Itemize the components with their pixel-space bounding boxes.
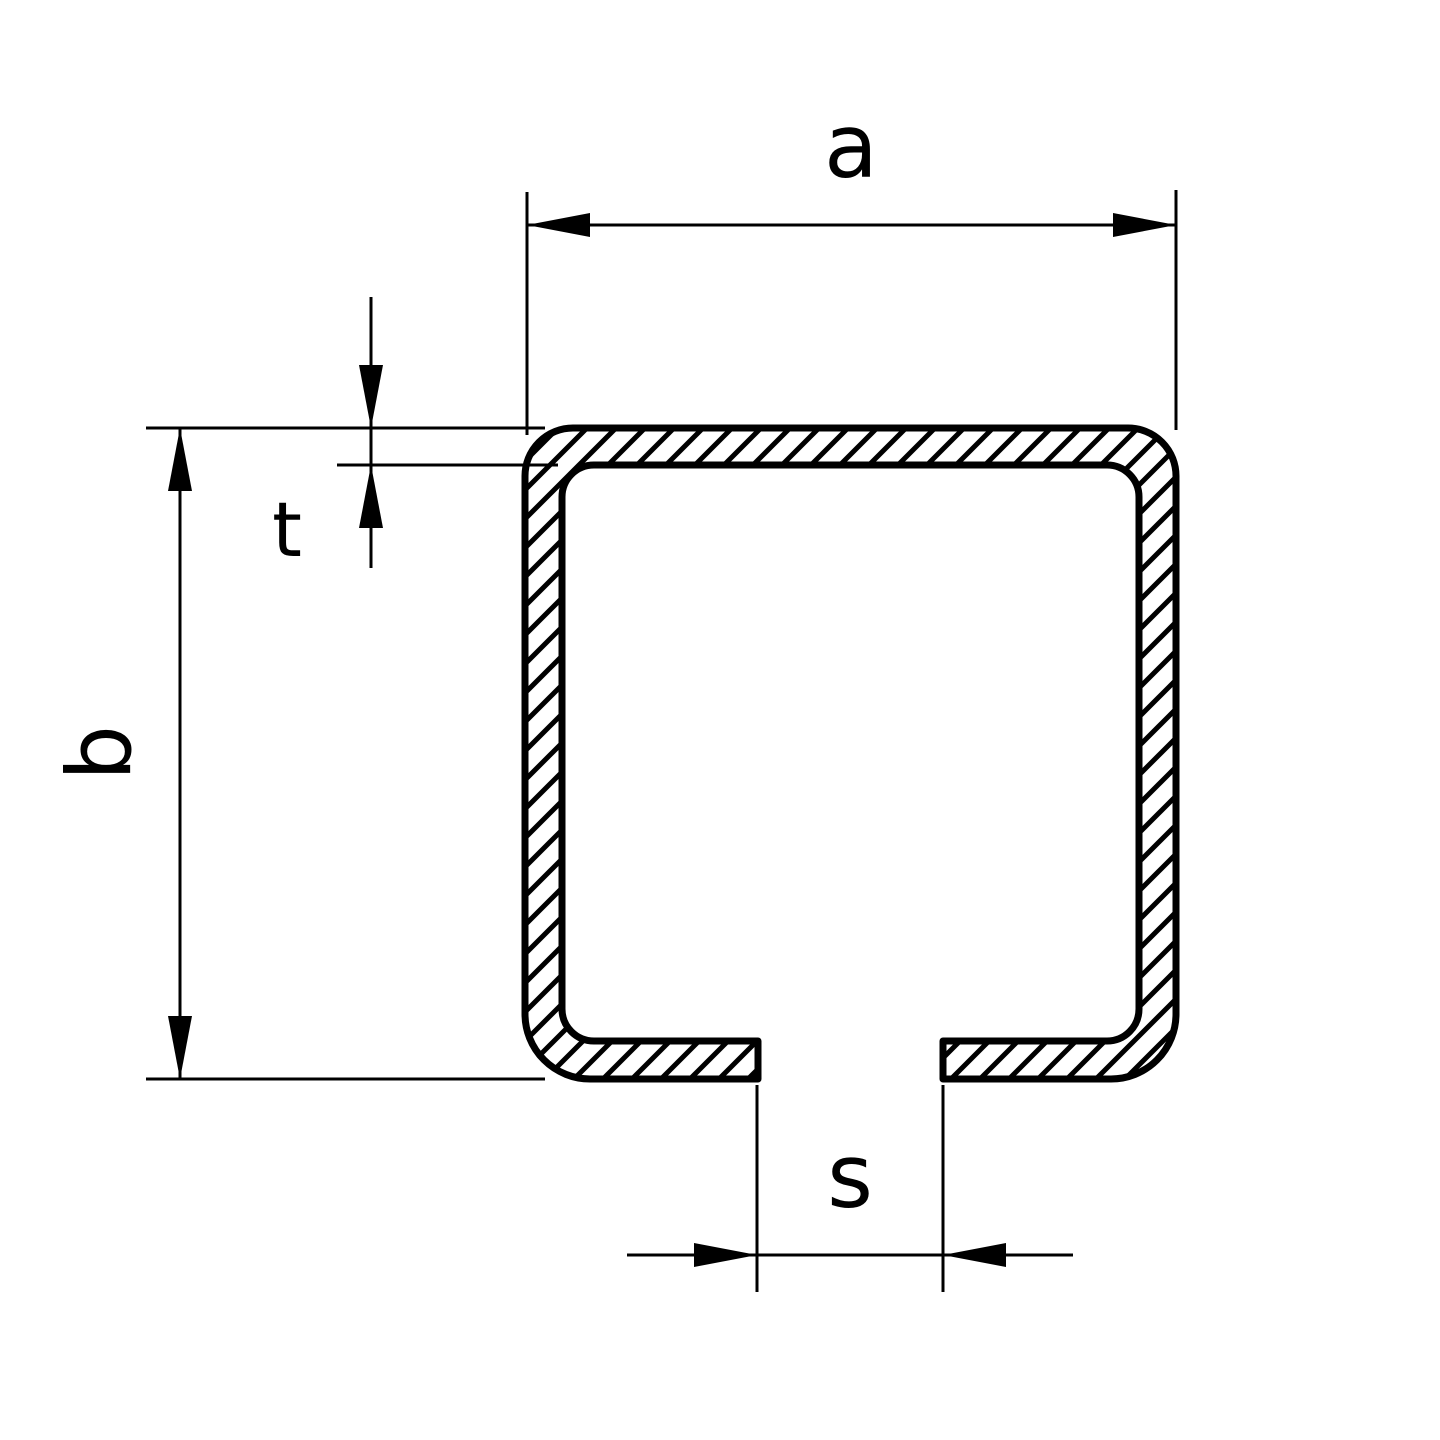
profile-cross-section xyxy=(525,428,1176,1079)
dimension-b xyxy=(146,428,545,1079)
dimension-a-label: a xyxy=(824,95,878,198)
dimension-t-arrow-down-icon xyxy=(359,365,383,428)
dimension-b-label: b xyxy=(48,725,151,781)
dimension-t-label: t xyxy=(272,485,302,574)
drawing-canvas: a b t s xyxy=(0,0,1440,1440)
dimension-a-arrow-right-icon xyxy=(1113,213,1176,237)
dimension-b-arrow-top-icon xyxy=(168,428,192,491)
dimension-s-arrow-left-icon xyxy=(694,1243,757,1267)
dimension-t-arrow-up-icon xyxy=(359,465,383,528)
dimension-s-label: s xyxy=(827,1125,873,1228)
dimension-b-arrow-bottom-icon xyxy=(168,1016,192,1079)
dimension-a xyxy=(527,190,1176,435)
profile-drawing: a b t s xyxy=(0,0,1440,1440)
dimension-a-arrow-left-icon xyxy=(527,213,590,237)
dimension-s-arrow-right-icon xyxy=(943,1243,1006,1267)
